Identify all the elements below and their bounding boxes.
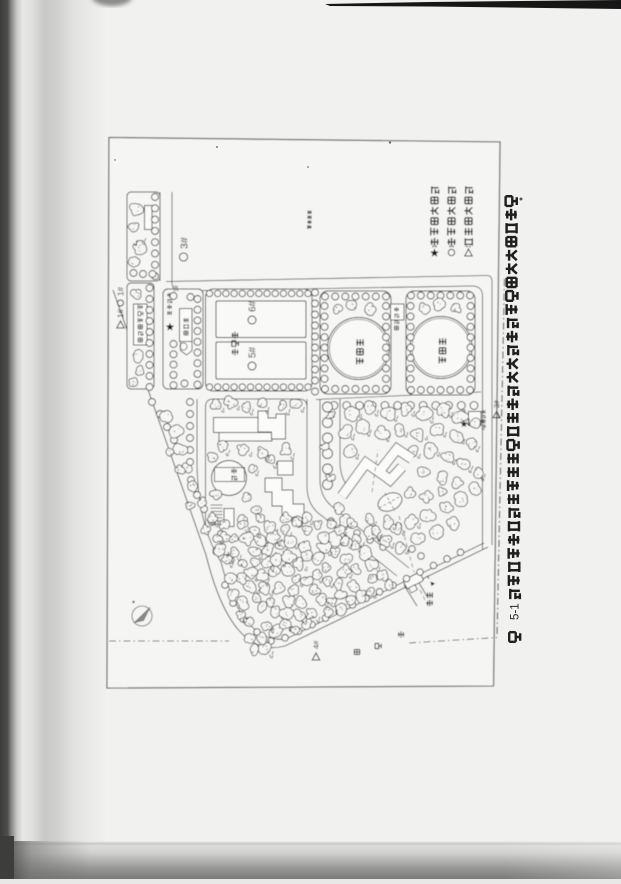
svg-text:1#: 1# bbox=[116, 287, 125, 296]
svg-text:4#: 4# bbox=[312, 640, 321, 649]
svg-text:3#: 3# bbox=[178, 237, 190, 249]
svg-text:1#: 1# bbox=[174, 285, 180, 292]
svg-text:5#: 5# bbox=[248, 346, 259, 358]
svg-text:6#: 6# bbox=[248, 300, 259, 312]
svg-text:5-1: 5-1 bbox=[510, 603, 522, 620]
svg-text:1#: 1# bbox=[116, 309, 125, 318]
svg-text:3#: 3# bbox=[494, 400, 501, 408]
